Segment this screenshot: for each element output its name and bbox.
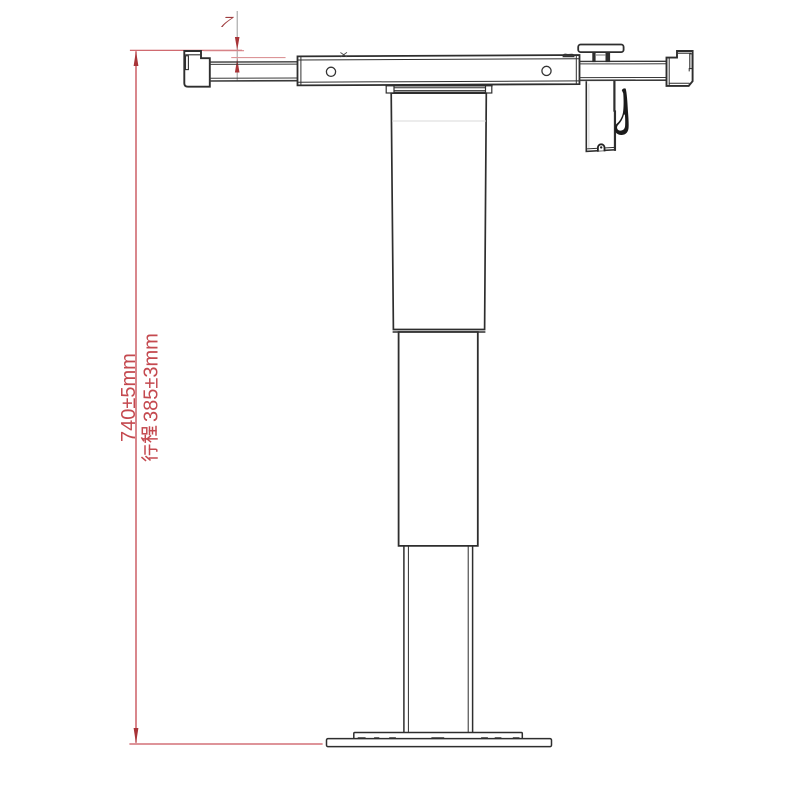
svg-text:7: 7: [215, 14, 237, 30]
svg-text:740±5mm: 740±5mm: [118, 353, 140, 442]
svg-text:385±3mm: 385±3mm: [141, 333, 163, 422]
